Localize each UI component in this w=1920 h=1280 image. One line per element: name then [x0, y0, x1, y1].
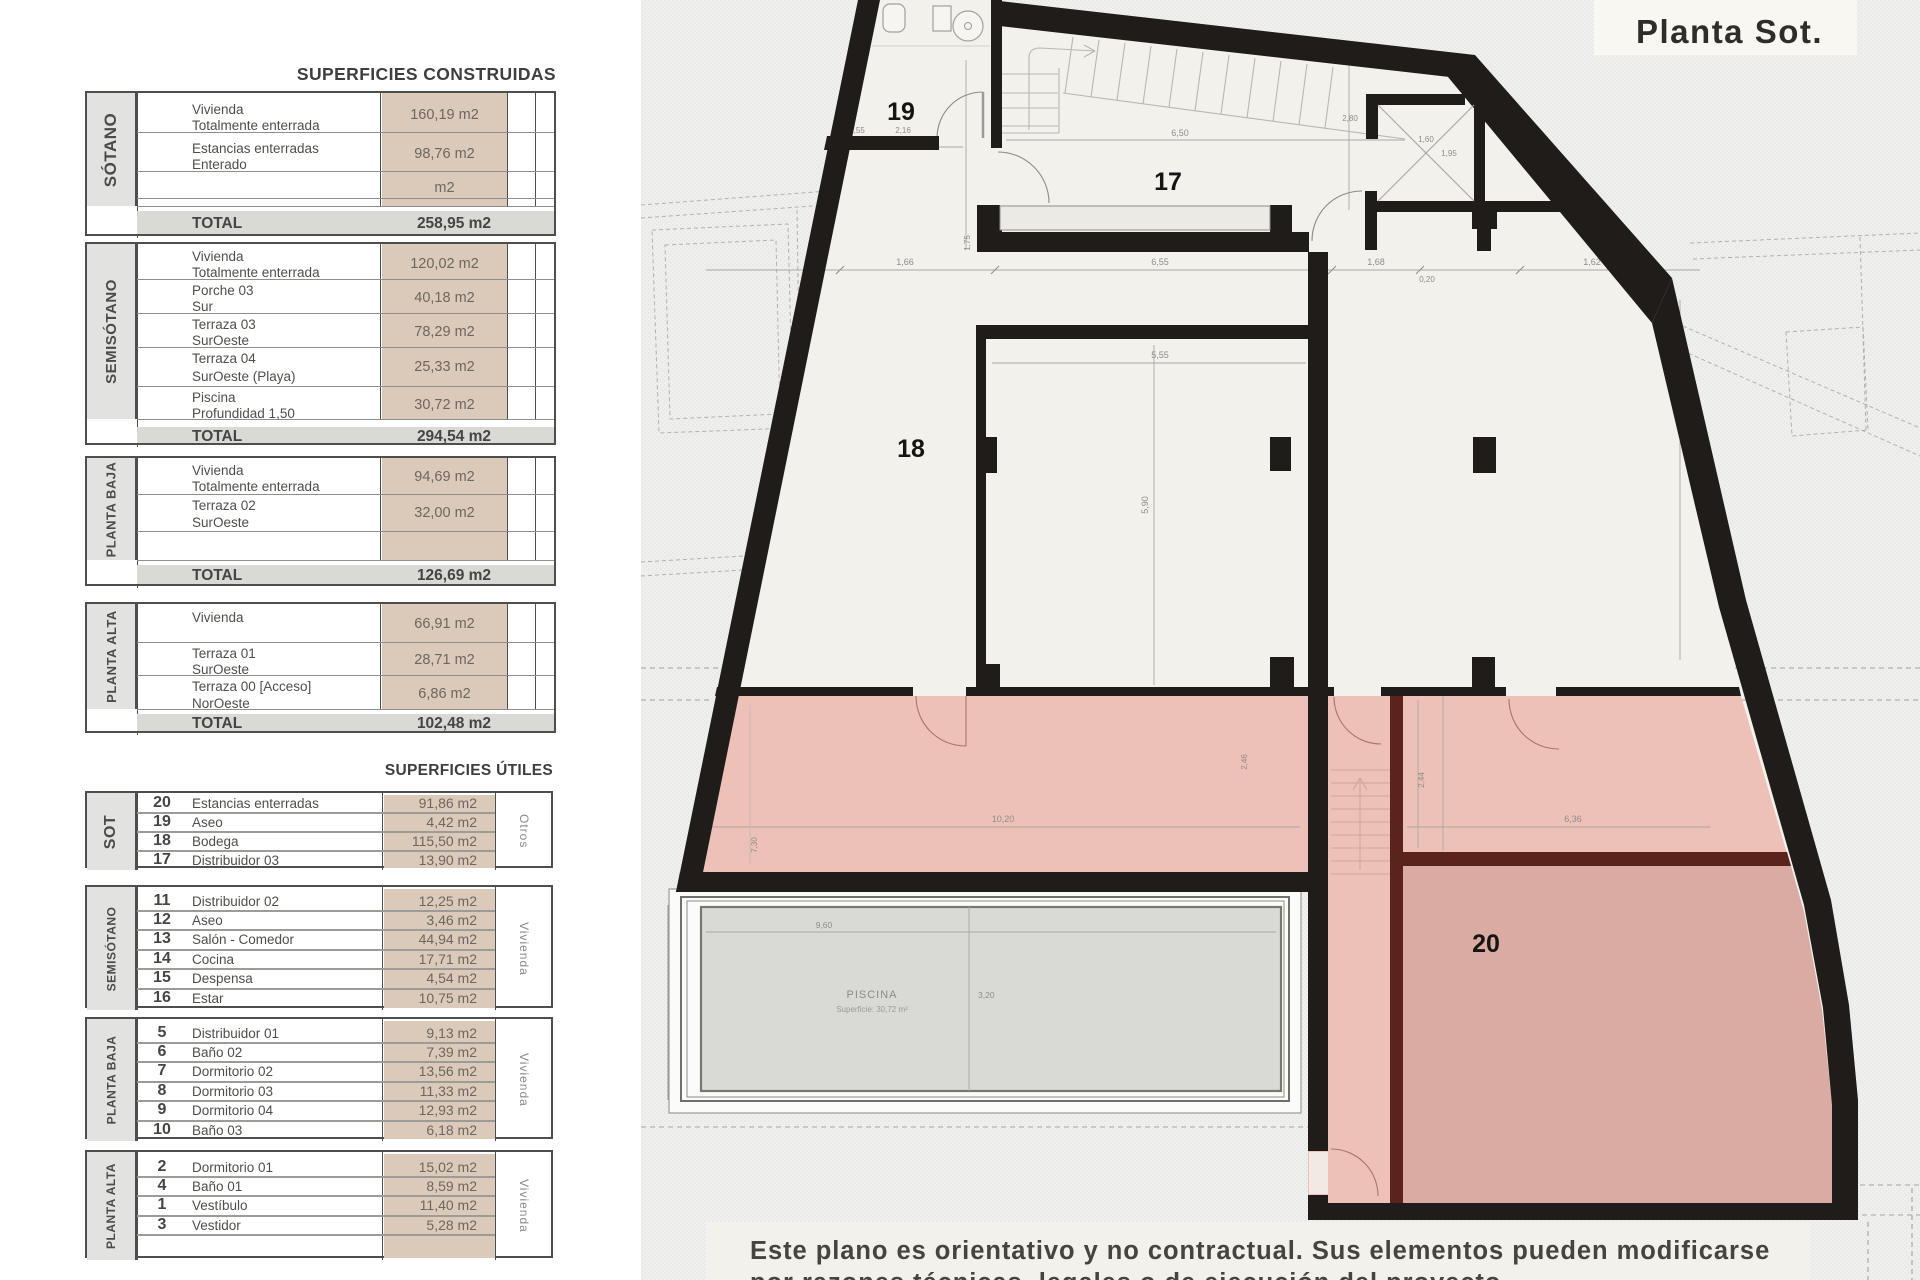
svg-text:1,95: 1,95 [1441, 149, 1457, 158]
svg-text:1,68: 1,68 [1367, 257, 1385, 267]
svg-text:5,90: 5,90 [1140, 496, 1150, 514]
svg-text:2,44: 2,44 [1417, 772, 1426, 788]
svg-text:1,75: 1,75 [963, 235, 972, 251]
svg-text:9,60: 9,60 [816, 920, 833, 930]
svg-text:1,66: 1,66 [896, 257, 914, 267]
svg-text:3,20: 3,20 [978, 990, 995, 1000]
svg-text:6,55: 6,55 [1151, 257, 1169, 267]
svg-text:PISCINA: PISCINA [846, 989, 897, 1001]
svg-text:19: 19 [887, 98, 915, 126]
svg-text:Planta Sot.: Planta Sot. [1636, 13, 1823, 50]
svg-text:0,20: 0,20 [1419, 275, 1435, 284]
svg-text:10,20: 10,20 [992, 814, 1015, 824]
svg-text:2,80: 2,80 [1342, 114, 1358, 123]
svg-text:17: 17 [1154, 168, 1182, 196]
svg-text:6,50: 6,50 [1171, 128, 1189, 138]
svg-text:5,55: 5,55 [1151, 350, 1169, 360]
svg-text:por razones técnicas, legales: por razones técnicas, legales o de ejecu… [750, 1269, 1509, 1280]
svg-text:20: 20 [1472, 930, 1500, 958]
svg-text:18: 18 [897, 435, 925, 463]
svg-text:7,30: 7,30 [750, 837, 759, 853]
svg-text:1,62: 1,62 [1583, 257, 1601, 267]
svg-text:2,16: 2,16 [895, 126, 911, 135]
svg-text:Este plano es orientativo y no: Este plano es orientativo y no contractu… [750, 1237, 1770, 1265]
svg-text:2,46: 2,46 [1240, 754, 1249, 770]
svg-text:6,36: 6,36 [1564, 814, 1582, 824]
svg-text:Superficie: 30,72 m²: Superficie: 30,72 m² [836, 1005, 908, 1014]
svg-text:1,60: 1,60 [1418, 135, 1434, 144]
